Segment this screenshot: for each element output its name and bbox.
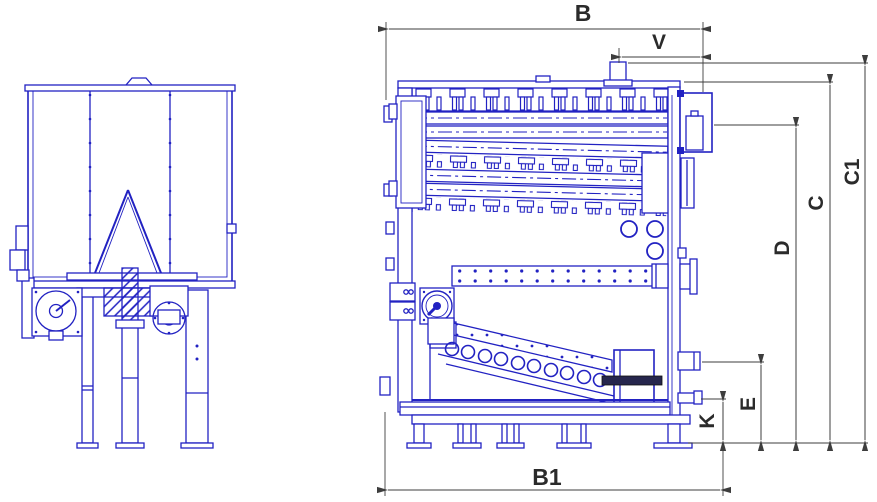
pipe-sockets bbox=[621, 221, 663, 259]
upper-door bbox=[389, 96, 426, 208]
dim-label-c1: C1 bbox=[841, 158, 864, 185]
return-connection bbox=[680, 259, 697, 294]
dim-label-v: V bbox=[652, 31, 666, 54]
chimney-stub bbox=[604, 62, 632, 86]
dim-label-b1: B1 bbox=[532, 464, 562, 490]
blueprint-page: B V C1 C D E K B1 bbox=[0, 0, 877, 502]
base-frame bbox=[400, 402, 692, 448]
front-view bbox=[10, 78, 236, 448]
side-view bbox=[380, 62, 712, 448]
smoke-box bbox=[677, 90, 712, 154]
hopper-box bbox=[25, 78, 236, 282]
side-pipe bbox=[10, 226, 29, 281]
drain-stub bbox=[678, 391, 702, 404]
dim-label-e: E bbox=[737, 397, 760, 411]
dim-label-d: D bbox=[771, 240, 794, 255]
door-hinge bbox=[389, 181, 397, 196]
tube-bundle bbox=[410, 88, 670, 216]
door-hinge bbox=[389, 104, 397, 119]
lifting-lug bbox=[126, 78, 152, 85]
flow-stub bbox=[678, 352, 700, 370]
boiler-technical-drawing: B V C1 C D E K B1 bbox=[0, 0, 877, 502]
inclined-grate bbox=[428, 318, 614, 404]
dim-label-b: B bbox=[575, 0, 592, 26]
dim-label-k: K bbox=[696, 413, 719, 428]
clinker-crusher-bar bbox=[602, 376, 662, 385]
perforated-baffle bbox=[452, 264, 668, 288]
burner-front-boxes bbox=[390, 283, 415, 320]
top-fitting bbox=[536, 76, 550, 82]
dim-label-c: C bbox=[805, 195, 828, 210]
rear-tube-panel bbox=[642, 153, 670, 213]
